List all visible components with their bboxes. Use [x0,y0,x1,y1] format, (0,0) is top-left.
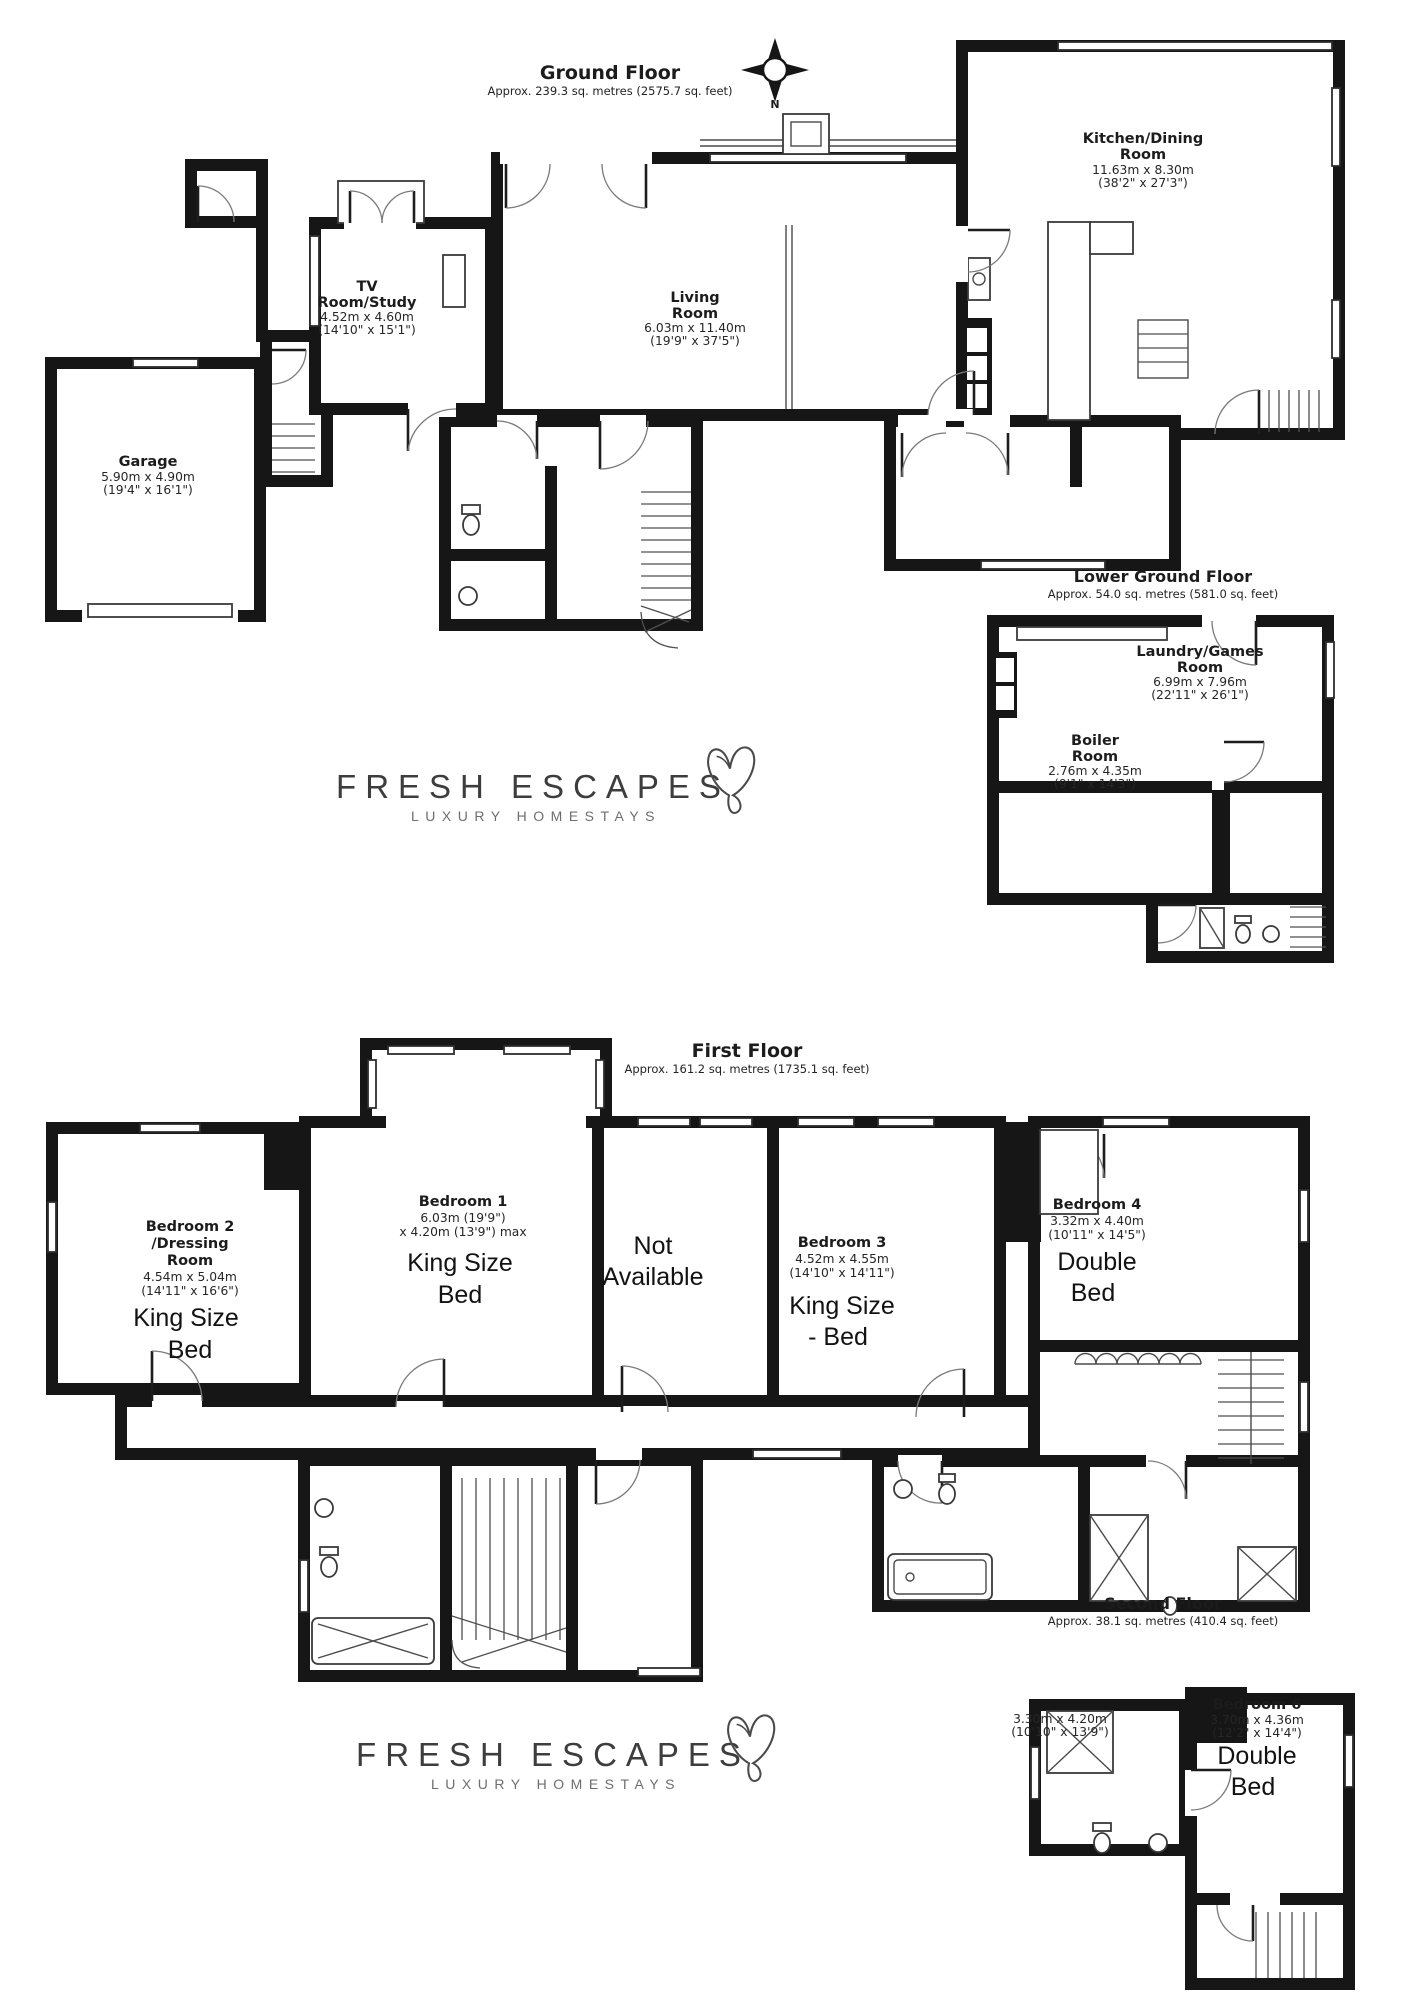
garage-dims: (19'4" x 16'1") [103,483,193,497]
boiler-dims: 2.76m x 4.35m [1048,764,1142,778]
bedroom6-bed-annotation: Bed [1231,1773,1275,1802]
compass-n-label: N [770,98,779,111]
wall [256,217,268,342]
bedroom3-bed-annotation: King Size [789,1292,895,1321]
oven-icon [967,328,987,352]
boiler-room-outline [993,787,1218,899]
bath-icon [888,1554,992,1600]
ground-floor-area: Approx. 239.3 sq. metres (2575.7 sq. fee… [487,84,732,98]
brand-tagline: LUXURY HOMESTAYS [431,1776,681,1792]
brand-name: FRESH ESCAPES [356,1736,750,1774]
wall [566,1466,578,1670]
sf-stair-room-outline [1191,1899,1349,1984]
ground-floor-title: Ground Floor [540,62,680,84]
bedroom2-bed-annotation: Bed [168,1336,212,1365]
corridor-outline [121,1401,1034,1454]
butterfly-icon [720,1710,782,1794]
wall [545,466,557,625]
living-label: Room [672,306,718,322]
floorplan-page: { "brand": {"name": "FRESH ESCAPES", "ta… [0,0,1414,2000]
living-room-outline [497,158,966,415]
bedroom6-dims: 3.70m x 4.36m [1210,1713,1304,1727]
washer-icon [996,686,1014,710]
brand-name: FRESH ESCAPES [336,768,730,806]
compass-icon [741,38,809,102]
sink-unit [968,258,990,300]
bedroom6-dims: (12'2" x 14'4") [1212,1726,1302,1740]
bathroom-stair-block-outline [445,421,697,625]
bedroom6-bed-annotation: Double [1217,1742,1296,1771]
lower-ground-area: Approx. 54.0 sq. metres (581.0 sq. feet) [1048,587,1278,601]
bedroom2-dims: 4.54m x 5.04m [143,1270,237,1284]
bedroom4-bed-annotation: Bed [1071,1279,1115,1308]
laundry-label: Laundry/Games [1136,644,1263,660]
entry-porch-outline [191,165,262,222]
living-dims: 6.03m x 11.40m [644,321,746,335]
bedroom6-label: Bedroom 6 [1213,1697,1302,1713]
kitchen-label: Kitchen/Dining [1083,131,1204,147]
living-dims: (19'9" x 37'5") [650,334,740,348]
ground-and-lower-ground-floorplan [0,0,1414,1000]
bedroom1-label: Bedroom 1 [419,1194,508,1210]
garage-dims: 5.90m x 4.90m [101,470,195,484]
bedroom4-label: Bedroom 4 [1053,1197,1142,1213]
wall [445,549,557,561]
washer-icon [996,658,1014,682]
fireplace [443,255,465,307]
first-floor-plan [48,1044,1308,1676]
bedroom4-dims: 3.32m x 4.40m [1050,1214,1144,1228]
butterfly-icon [700,742,762,826]
toilet-icon [462,505,480,514]
bedroom1-bed-annotation: King Size [407,1249,513,1278]
wall [1070,415,1082,487]
brand-tagline: LUXURY HOMESTAYS [411,808,661,824]
bedroom1-bed-annotation: Bed [438,1281,482,1310]
not-available-annotation: Not [634,1232,673,1261]
tv-room-dims: (14'10" x 15'1") [318,323,416,337]
bedroom2-label: Bedroom 2 [146,1219,235,1235]
first-floor-area: Approx. 161.2 sq. metres (1735.1 sq. fee… [624,1062,869,1076]
bedroom4-dims: (10'11" x 14'5") [1048,1228,1146,1242]
sink-icon [894,1480,912,1498]
wall [440,1466,452,1670]
boiler-label: Boiler [1071,733,1119,749]
sf-bathroom-dims: (10'10" x 13'9") [1011,1725,1109,1739]
sink-icon [1149,1834,1167,1852]
garage-door [88,604,232,617]
tv-room-label: TV [356,279,377,295]
garage-label: Garage [119,454,178,470]
living-label: Living [670,290,719,306]
second-floor-area: Approx. 38.1 sq. metres (410.4 sq. feet) [1048,1614,1278,1628]
bedroom3-dims: 4.52m x 4.55m [795,1252,889,1266]
bedroom1-dims: 6.03m (19'9") [420,1211,505,1225]
toilet-icon [320,1547,338,1555]
sf-bathroom-dims: 3.30m x 4.20m [1013,1712,1107,1726]
chimney-wall [995,1122,1041,1242]
closet-wall [264,1128,300,1190]
bedroom3-bed-annotation: - Bed [808,1323,868,1352]
laundry-dims: 6.99m x 7.96m [1153,675,1247,689]
boiler-dims: (9'1" x 14'3") [1054,777,1136,791]
bedroom2-label: Room [167,1253,213,1269]
kitchen-room-outline [962,46,1339,434]
kitchen-dims: (38'2" x 27'3") [1098,176,1188,190]
tv-room-dims: 4.52m x 4.60m [320,310,414,324]
boiler-label: Room [1072,749,1118,765]
first-and-second-floorplan [0,1000,1414,2000]
kitchen-label: Room [1120,147,1166,163]
counter [1017,627,1167,640]
kitchen-dims: 11.63m x 8.30m [1092,163,1194,177]
chimney [783,114,829,154]
lower-ground-title: Lower Ground Floor [1074,567,1252,586]
first-floor-title: First Floor [692,1040,803,1062]
sink-icon [1263,926,1279,942]
bedroom3-label: Bedroom 3 [798,1235,887,1251]
toilet-icon [939,1474,955,1482]
laundry-label: Room [1177,660,1223,676]
lgf-hall-outline [1224,787,1328,899]
toilet-icon [1093,1823,1111,1831]
oven-icon [967,384,987,408]
tv-room-label: Room/Study [317,295,416,311]
laundry-dims: (22'11" x 26'1") [1151,688,1249,702]
sink-icon [315,1499,333,1517]
bedroom2-dims: (14'11" x 16'6") [141,1284,239,1298]
second-floor-title: Second Floor [1104,1594,1222,1613]
lower-ground-floor-plan [993,613,1334,957]
sink-icon [459,587,477,605]
bedroom1-dims: x 4.20m (13'9") max [399,1225,526,1239]
bedroom2-bed-annotation: King Size [133,1304,239,1333]
bedroom4-bed-annotation: Double [1057,1248,1136,1277]
bedroom3-dims: (14'10" x 14'11") [789,1266,894,1280]
toilet-icon [1235,916,1251,923]
bedroom2-label: /Dressing [151,1236,228,1252]
oven-icon [967,356,987,380]
not-available-annotation: Available [602,1263,703,1292]
rear-hall-outline [890,421,1175,565]
